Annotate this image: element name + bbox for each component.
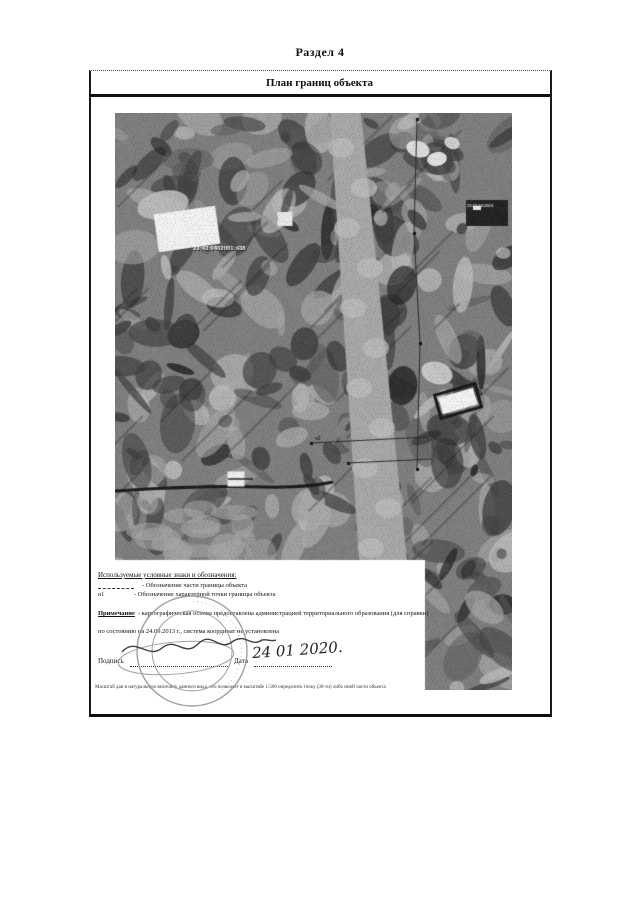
section-title: Раздел 4 [0, 45, 640, 60]
document-page: Раздел 4 План границ объекта Используемы… [0, 0, 640, 905]
legend-heading: Используемые условные знаки и обозначени… [98, 571, 237, 579]
title-rule [89, 94, 550, 97]
plan-title: План границ объекта [89, 77, 550, 89]
